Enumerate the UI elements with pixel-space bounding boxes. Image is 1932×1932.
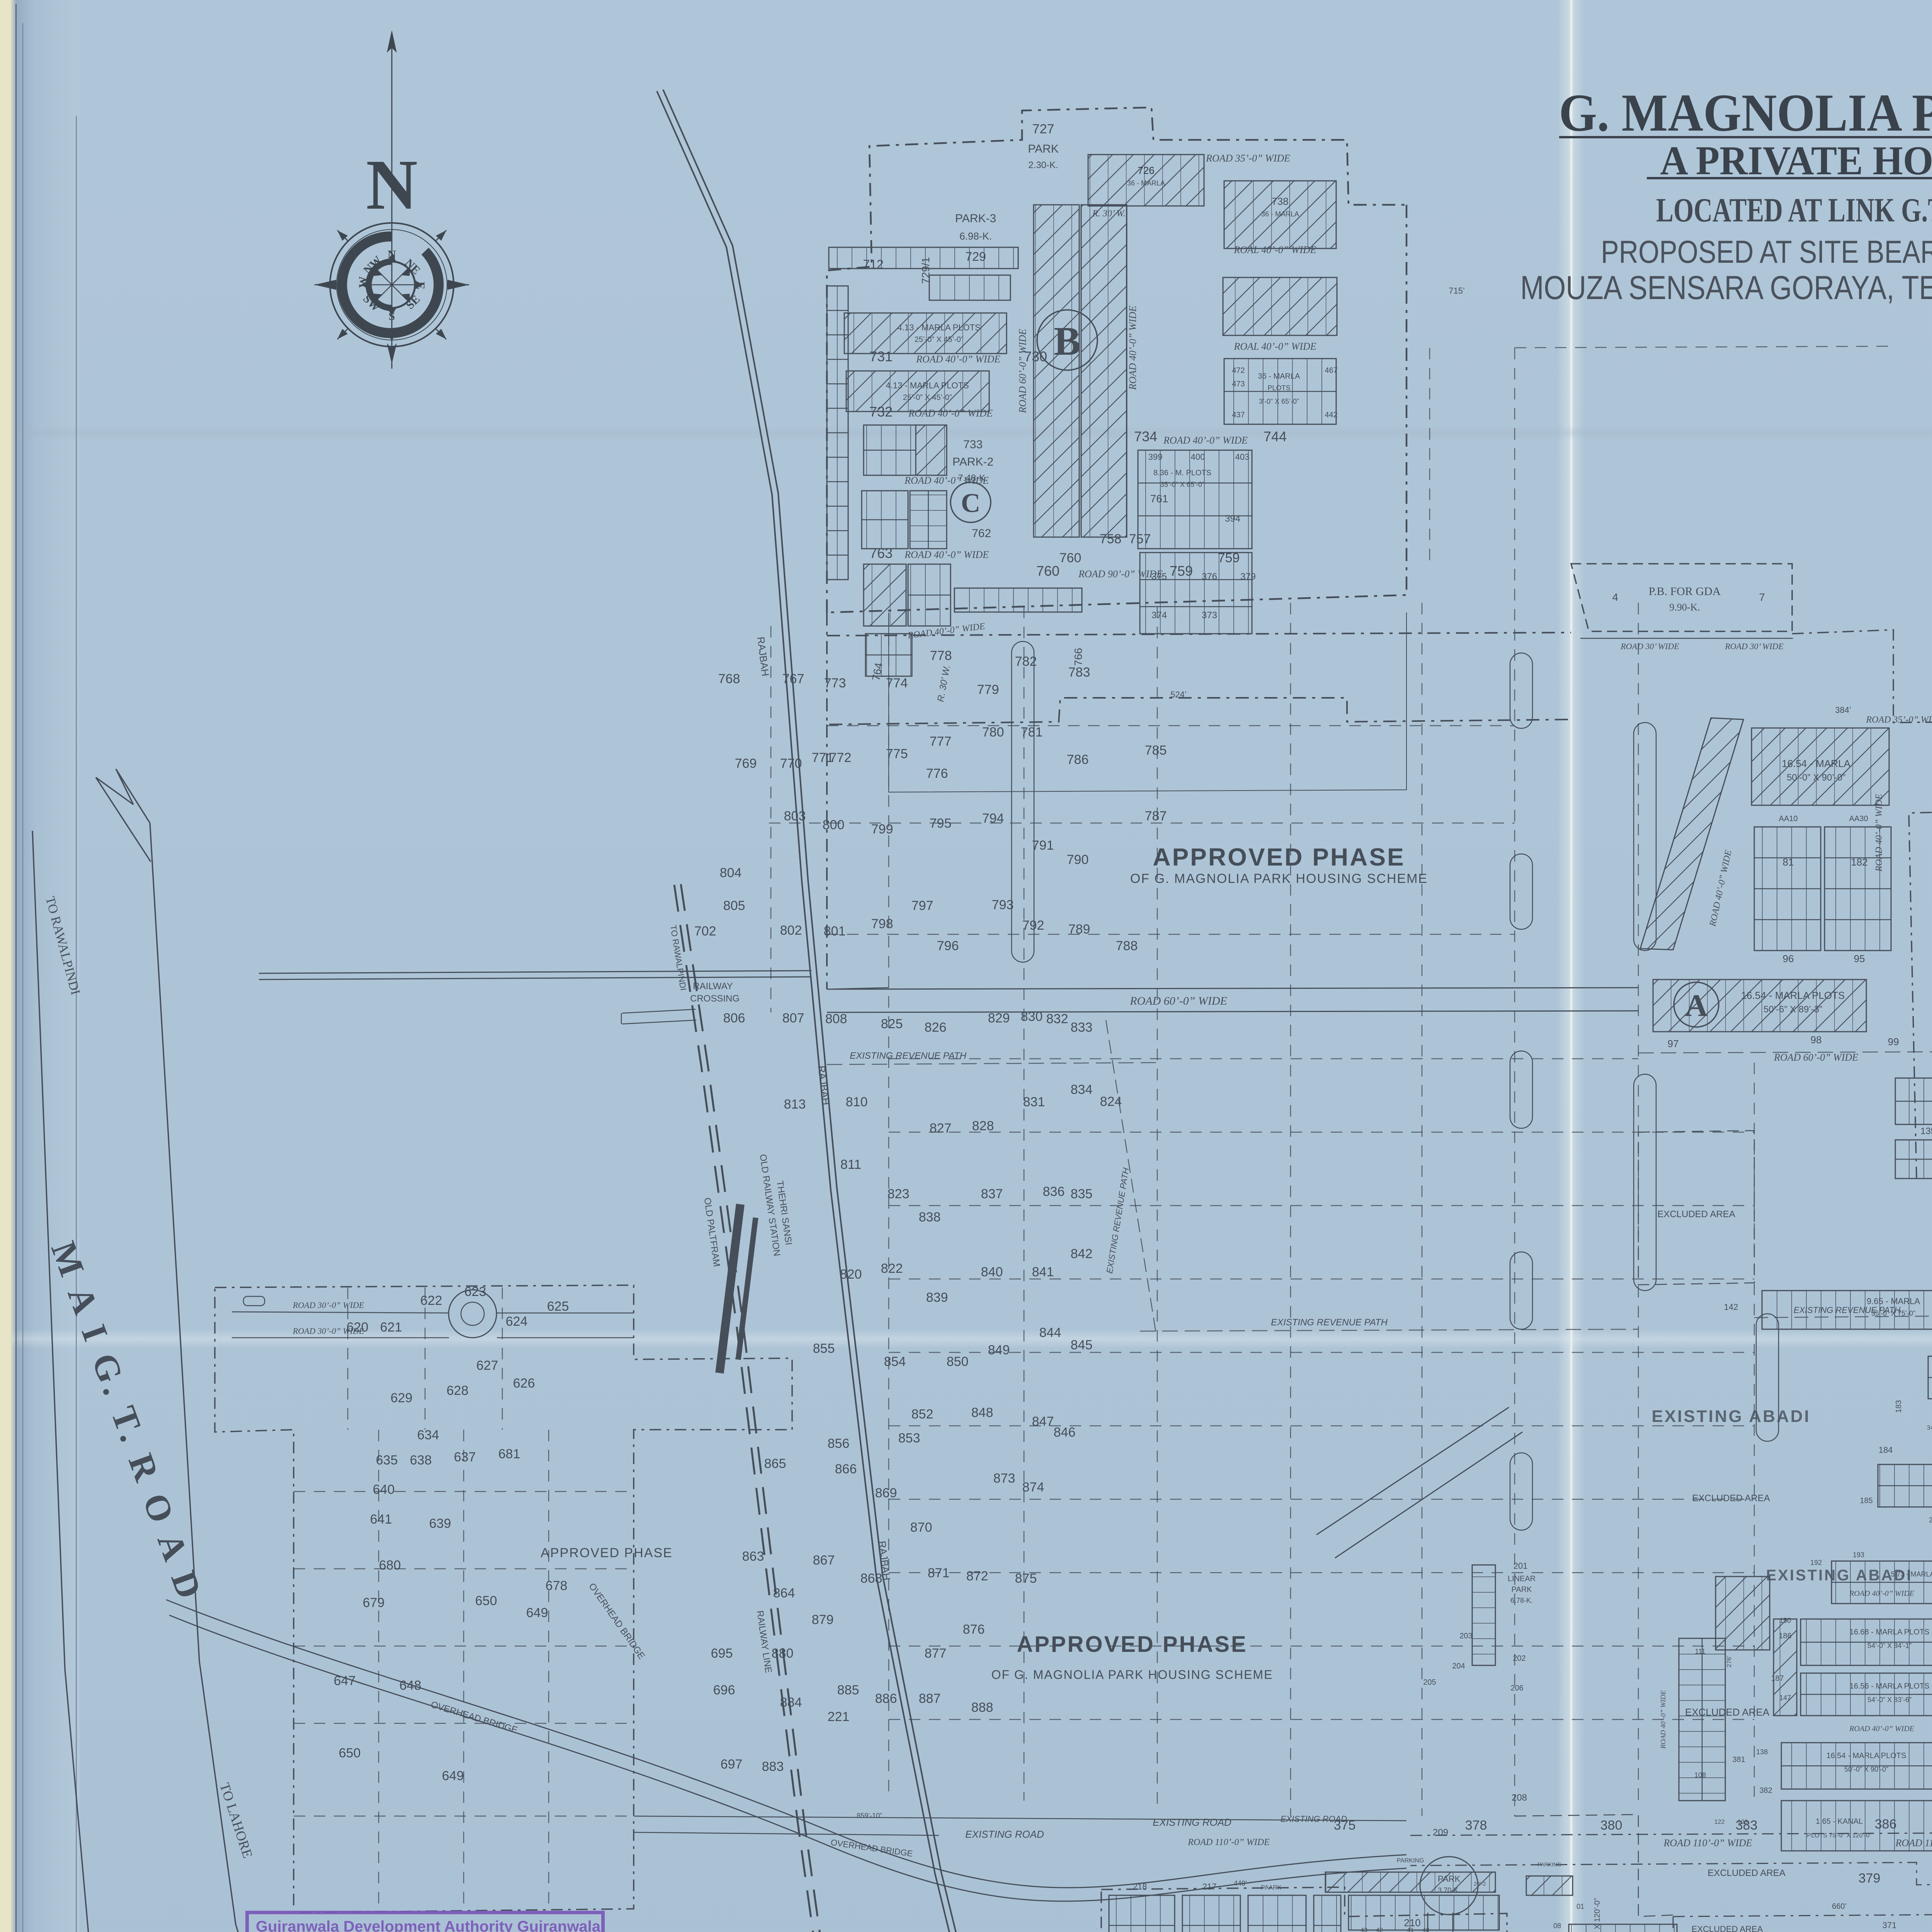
svg-text:800: 800 bbox=[823, 818, 845, 832]
svg-text:371: 371 bbox=[1883, 1920, 1897, 1930]
svg-text:801: 801 bbox=[824, 924, 846, 939]
svg-text:777: 777 bbox=[930, 734, 952, 749]
svg-text:822: 822 bbox=[881, 1261, 903, 1276]
svg-text:EXISTING ROAD: EXISTING ROAD bbox=[1153, 1816, 1231, 1828]
svg-text:54’-0” X 83’-6”: 54’-0” X 83’-6” bbox=[1867, 1696, 1912, 1704]
svg-text:ROAD 60’-0” WIDE: ROAD 60’-0” WIDE bbox=[1774, 1052, 1858, 1063]
svg-text:440’: 440’ bbox=[1234, 1879, 1247, 1887]
svg-text:EXISTING ABADI: EXISTING ABADI bbox=[1766, 1567, 1913, 1584]
svg-text:7: 7 bbox=[1759, 591, 1765, 603]
svg-text:EXISTING REVENUE PATH: EXISTING REVENUE PATH bbox=[1105, 1167, 1131, 1274]
svg-text:795: 795 bbox=[930, 816, 952, 831]
svg-text:864: 864 bbox=[773, 1586, 795, 1600]
svg-text:729: 729 bbox=[965, 250, 986, 264]
svg-text:138: 138 bbox=[1756, 1748, 1768, 1756]
svg-text:832: 832 bbox=[1046, 1012, 1068, 1026]
svg-text:36 - MARLA: 36 - MARLA bbox=[1127, 179, 1165, 187]
svg-text:727: 727 bbox=[1032, 122, 1054, 136]
svg-text:142: 142 bbox=[1724, 1302, 1738, 1312]
svg-text:778: 778 bbox=[930, 648, 952, 663]
svg-text:785: 785 bbox=[1145, 743, 1167, 758]
svg-text:16.54 - MARLA PLOTS: 16.54 - MARLA PLOTS bbox=[1741, 990, 1845, 1001]
svg-text:625: 625 bbox=[547, 1299, 569, 1314]
svg-text:852: 852 bbox=[912, 1407, 934, 1422]
svg-text:6.78-K.: 6.78-K. bbox=[1510, 1597, 1533, 1604]
svg-text:828: 828 bbox=[972, 1119, 994, 1133]
svg-text:888: 888 bbox=[971, 1700, 993, 1715]
svg-text:712: 712 bbox=[863, 257, 883, 271]
svg-text:846: 846 bbox=[1054, 1425, 1076, 1440]
svg-text:ROAD 110’-0” WIDE: ROAD 110’-0” WIDE bbox=[1187, 1837, 1270, 1847]
svg-text:839: 839 bbox=[926, 1290, 948, 1305]
svg-text:374: 374 bbox=[1151, 610, 1167, 621]
svg-text:781: 781 bbox=[1021, 725, 1043, 740]
svg-text:813: 813 bbox=[784, 1097, 806, 1112]
svg-text:627: 627 bbox=[476, 1358, 498, 1373]
svg-text:768: 768 bbox=[718, 672, 740, 686]
svg-text:341: 341 bbox=[1927, 1425, 1932, 1431]
svg-text:4.13 - MARLA PLOTS: 4.13 - MARLA PLOTS bbox=[886, 381, 969, 390]
svg-text:EXISTING REVENUE PATH: EXISTING REVENUE PATH bbox=[850, 1051, 966, 1061]
svg-text:783: 783 bbox=[1068, 665, 1090, 680]
svg-text:792: 792 bbox=[1022, 918, 1044, 933]
svg-text:01: 01 bbox=[1577, 1903, 1584, 1910]
svg-text:ROAD 40’-0” WIDE: ROAD 40’-0” WIDE bbox=[1849, 1725, 1914, 1733]
svg-text:EXCLUDED AREA: EXCLUDED AREA bbox=[1708, 1868, 1785, 1878]
svg-text:790: 790 bbox=[1067, 852, 1089, 867]
svg-text:193: 193 bbox=[1853, 1551, 1864, 1559]
svg-text:35’-0” X 65’-0”: 35’-0” X 65’-0” bbox=[1160, 481, 1204, 488]
svg-text:808: 808 bbox=[825, 1012, 847, 1026]
svg-text:885: 885 bbox=[837, 1683, 859, 1697]
svg-text:380: 380 bbox=[1600, 1818, 1622, 1833]
svg-text:874: 874 bbox=[1022, 1480, 1044, 1495]
svg-text:650: 650 bbox=[475, 1594, 497, 1608]
svg-text:639: 639 bbox=[429, 1516, 451, 1531]
svg-text:621: 621 bbox=[380, 1320, 402, 1335]
svg-text:842: 842 bbox=[1071, 1247, 1093, 1261]
svg-text:628: 628 bbox=[447, 1383, 469, 1398]
svg-text:734: 734 bbox=[1134, 429, 1157, 444]
svg-text:209: 209 bbox=[1433, 1827, 1448, 1838]
svg-text:PARK: PARK bbox=[1028, 143, 1058, 155]
svg-text:185: 185 bbox=[1860, 1497, 1872, 1505]
svg-text:876: 876 bbox=[963, 1622, 985, 1637]
svg-text:805: 805 bbox=[723, 898, 745, 913]
svg-text:845: 845 bbox=[1071, 1338, 1093, 1352]
svg-text:622: 622 bbox=[420, 1293, 442, 1308]
svg-text:ROAD 90’-0” WIDE: ROAD 90’-0” WIDE bbox=[1078, 568, 1163, 580]
svg-text:TO RAWALPINDI: TO RAWALPINDI bbox=[668, 924, 689, 991]
svg-text:CROSSING: CROSSING bbox=[690, 993, 740, 1004]
svg-text:841: 841 bbox=[1032, 1265, 1054, 1279]
svg-text:802: 802 bbox=[780, 923, 802, 938]
svg-text:833: 833 bbox=[1071, 1020, 1093, 1035]
svg-text:774: 774 bbox=[886, 676, 908, 690]
svg-text:729/1: 729/1 bbox=[920, 257, 932, 284]
svg-text:TO RAWALPINDI: TO RAWALPINDI bbox=[43, 895, 83, 997]
svg-text:856: 856 bbox=[828, 1436, 850, 1451]
svg-text:276’: 276’ bbox=[1726, 1656, 1733, 1667]
svg-text:4: 4 bbox=[1612, 591, 1618, 603]
svg-text:886: 886 bbox=[875, 1691, 897, 1706]
svg-text:394: 394 bbox=[1225, 514, 1240, 524]
svg-text:379: 379 bbox=[1240, 571, 1256, 582]
svg-text:PARK: PARK bbox=[1512, 1585, 1532, 1594]
svg-text:99: 99 bbox=[1888, 1036, 1899, 1048]
svg-text:192: 192 bbox=[1810, 1559, 1822, 1566]
svg-text:788: 788 bbox=[1116, 939, 1138, 953]
svg-text:877: 877 bbox=[925, 1646, 947, 1661]
svg-text:823: 823 bbox=[888, 1187, 910, 1201]
svg-text:797: 797 bbox=[912, 898, 934, 913]
svg-text:ROAD 35’-0” WIDE: ROAD 35’-0” WIDE bbox=[1866, 715, 1932, 725]
svg-text:649: 649 bbox=[442, 1769, 464, 1783]
svg-text:APPROVED PHASE: APPROVED PHASE bbox=[1153, 843, 1405, 871]
svg-text:50’-0” X 90’-0”: 50’-0” X 90’-0” bbox=[1787, 772, 1845, 783]
svg-text:16.56 - MARLA PLOTS: 16.56 - MARLA PLOTS bbox=[1850, 1682, 1930, 1690]
svg-text:EXISTING ROAD: EXISTING ROAD bbox=[965, 1828, 1044, 1840]
svg-text:122: 122 bbox=[1714, 1819, 1725, 1825]
svg-text:384’: 384’ bbox=[1835, 705, 1851, 715]
svg-text:182: 182 bbox=[1851, 856, 1867, 868]
svg-text:779: 779 bbox=[977, 682, 999, 697]
svg-text:AA30: AA30 bbox=[1849, 815, 1868, 823]
svg-text:786: 786 bbox=[1067, 752, 1089, 767]
svg-text:810: 810 bbox=[846, 1095, 868, 1109]
svg-text:381: 381 bbox=[1732, 1755, 1745, 1764]
svg-text:RAILWAY LINE: RAILWAY LINE bbox=[755, 1610, 774, 1673]
svg-text:96: 96 bbox=[1783, 953, 1794, 964]
svg-text:804: 804 bbox=[720, 866, 742, 880]
svg-text:796: 796 bbox=[937, 939, 959, 953]
svg-text:PARK-3: PARK-3 bbox=[955, 212, 996, 225]
svg-text:206: 206 bbox=[1510, 1684, 1523, 1692]
svg-text:ROAD 30’ WIDE: ROAD 30’ WIDE bbox=[1620, 641, 1679, 651]
svg-text:769: 769 bbox=[735, 756, 757, 771]
svg-text:202: 202 bbox=[1513, 1654, 1526, 1663]
svg-text:4.13 - MARLA PLOTS: 4.13 - MARLA PLOTS bbox=[897, 323, 980, 332]
svg-text:870: 870 bbox=[910, 1520, 932, 1535]
svg-text:702: 702 bbox=[694, 924, 716, 939]
svg-text:ROAD 40’-0” WIDE: ROAD 40’-0” WIDE bbox=[1708, 849, 1734, 928]
svg-text:641: 641 bbox=[370, 1512, 392, 1527]
svg-text:108: 108 bbox=[1694, 1771, 1706, 1779]
svg-text:806: 806 bbox=[723, 1011, 745, 1026]
svg-text:437: 437 bbox=[1232, 411, 1245, 419]
svg-text:ROAD 30’-0” WIDE: ROAD 30’-0” WIDE bbox=[293, 1300, 364, 1310]
svg-text:183: 183 bbox=[1895, 1400, 1903, 1413]
svg-text:ROAD 60’-0” WIDE: ROAD 60’-0” WIDE bbox=[1129, 995, 1227, 1007]
svg-text:36 - MARLA: 36 - MARLA bbox=[1261, 210, 1299, 218]
svg-text:883: 883 bbox=[762, 1759, 784, 1774]
svg-text:ROAD 40’-0” WIDE: ROAD 40’-0” WIDE bbox=[1163, 435, 1248, 446]
svg-text:629: 629 bbox=[391, 1391, 413, 1405]
svg-text:859’-10”: 859’-10” bbox=[857, 1812, 882, 1820]
svg-text:681: 681 bbox=[498, 1447, 520, 1461]
svg-text:1.65 - KANAL: 1.65 - KANAL bbox=[1816, 1817, 1863, 1826]
svg-text:ROAD 30’-0” WIDE: ROAD 30’-0” WIDE bbox=[293, 1326, 364, 1336]
svg-text:767: 767 bbox=[782, 672, 804, 686]
svg-text:LINEAR: LINEAR bbox=[1508, 1575, 1536, 1583]
svg-text:16.54 - MARLA: 16.54 - MARLA bbox=[1782, 758, 1850, 769]
svg-text:759: 759 bbox=[1170, 563, 1193, 579]
svg-text:726: 726 bbox=[1138, 165, 1154, 176]
svg-text:ROAD 35’-0” WIDE: ROAD 35’-0” WIDE bbox=[1206, 153, 1290, 164]
svg-text:847: 847 bbox=[1032, 1414, 1054, 1429]
svg-text:373: 373 bbox=[1202, 610, 1217, 621]
svg-text:873: 873 bbox=[993, 1471, 1015, 1486]
svg-text:887: 887 bbox=[919, 1691, 941, 1706]
svg-text:764: 764 bbox=[870, 662, 885, 682]
svg-text:OF G. MAGNOLIA PARK HOUSING SC: OF G. MAGNOLIA PARK HOUSING SCHEME bbox=[1130, 871, 1428, 886]
svg-text:221: 221 bbox=[828, 1709, 850, 1724]
svg-text:ROAD 110’-0” WIDE: ROAD 110’-0” WIDE bbox=[1663, 1837, 1752, 1849]
svg-text:APPROVED PHASE: APPROVED PHASE bbox=[541, 1546, 673, 1560]
svg-text:ROAD 40’-0” WIDE: ROAD 40’-0” WIDE bbox=[1874, 794, 1884, 872]
svg-text:837: 837 bbox=[981, 1187, 1003, 1201]
svg-text:680: 680 bbox=[379, 1558, 401, 1573]
svg-text:844: 844 bbox=[1039, 1325, 1061, 1340]
svg-text:50’-6” X 89’-3”: 50’-6” X 89’-3” bbox=[1764, 1004, 1822, 1015]
svg-text:97: 97 bbox=[1668, 1038, 1679, 1049]
svg-text:AA10: AA10 bbox=[1779, 815, 1798, 823]
svg-text:378: 378 bbox=[1465, 1818, 1487, 1833]
svg-text:791: 791 bbox=[1032, 838, 1054, 853]
svg-text:9.65 - MARLA: 9.65 - MARLA bbox=[1867, 1296, 1920, 1306]
svg-text:16.54 - MARLA PLOTS: 16.54 - MARLA PLOTS bbox=[1827, 1752, 1906, 1760]
svg-text:660’: 660’ bbox=[1832, 1902, 1847, 1911]
svg-text:201: 201 bbox=[1514, 1561, 1528, 1571]
svg-text:2.30-K.: 2.30-K. bbox=[1028, 160, 1058, 170]
svg-text:81: 81 bbox=[1783, 856, 1794, 868]
svg-text:871: 871 bbox=[928, 1566, 950, 1580]
svg-text:840: 840 bbox=[981, 1265, 1003, 1279]
svg-text:787: 787 bbox=[1145, 809, 1167, 823]
svg-text:738: 738 bbox=[1272, 196, 1288, 207]
svg-text:203: 203 bbox=[1459, 1632, 1472, 1640]
svg-text:865: 865 bbox=[764, 1456, 786, 1471]
svg-text:EXISTING ABADI: EXISTING ABADI bbox=[1651, 1407, 1810, 1426]
svg-text:775: 775 bbox=[886, 747, 908, 761]
svg-text:ROAD 40’-0” WIDE: ROAD 40’-0” WIDE bbox=[1127, 306, 1138, 390]
svg-text:761: 761 bbox=[1150, 493, 1168, 505]
svg-text:836: 836 bbox=[1043, 1184, 1065, 1199]
svg-text:649: 649 bbox=[526, 1605, 548, 1620]
svg-text:650: 650 bbox=[339, 1746, 361, 1760]
svg-text:RAJBAH: RAJBAH bbox=[816, 1065, 832, 1105]
svg-text:762: 762 bbox=[972, 527, 991, 540]
svg-text:838: 838 bbox=[919, 1210, 941, 1225]
svg-text:EXCLUDED AREA: EXCLUDED AREA bbox=[1692, 1493, 1770, 1503]
svg-text:782: 782 bbox=[1015, 654, 1037, 669]
svg-text:760: 760 bbox=[1036, 563, 1060, 579]
svg-text:ROAD 60’-0” WIDE: ROAD 60’-0” WIDE bbox=[1017, 329, 1028, 413]
svg-text:ROAL 40’-0” WIDE: ROAL 40’-0” WIDE bbox=[1233, 341, 1316, 352]
svg-text:780: 780 bbox=[982, 725, 1004, 740]
svg-text:638: 638 bbox=[410, 1453, 432, 1468]
svg-text:6.98-K.: 6.98-K. bbox=[959, 230, 992, 242]
svg-text:EXCLUDED AREA: EXCLUDED AREA bbox=[1692, 1924, 1763, 1932]
svg-text:08: 08 bbox=[1553, 1922, 1561, 1930]
svg-text:733: 733 bbox=[963, 438, 983, 451]
svg-text:853: 853 bbox=[898, 1431, 920, 1446]
svg-text:869: 869 bbox=[875, 1486, 897, 1500]
svg-text:772: 772 bbox=[830, 750, 852, 765]
svg-text:884: 884 bbox=[780, 1695, 802, 1710]
svg-text:382: 382 bbox=[1759, 1786, 1772, 1795]
svg-text:798: 798 bbox=[871, 917, 893, 931]
svg-text:P.B. FOR GDA: P.B. FOR GDA bbox=[1649, 585, 1721, 598]
svg-text:826: 826 bbox=[925, 1020, 947, 1035]
svg-text:111: 111 bbox=[1695, 1648, 1705, 1655]
svg-text:789: 789 bbox=[1068, 922, 1090, 937]
svg-text:696: 696 bbox=[713, 1683, 735, 1697]
svg-text:EXISTING REVENUE PATH: EXISTING REVENUE PATH bbox=[1271, 1317, 1388, 1328]
svg-text:831: 831 bbox=[1023, 1095, 1045, 1109]
svg-text:835: 835 bbox=[1071, 1187, 1093, 1201]
svg-text:830: 830 bbox=[1021, 1009, 1043, 1024]
svg-text:184: 184 bbox=[1879, 1445, 1893, 1455]
svg-text:208: 208 bbox=[1512, 1793, 1527, 1803]
svg-text:R. 30’ W.: R. 30’ W. bbox=[935, 664, 952, 703]
svg-text:256’-5”: 256’-5” bbox=[1929, 1516, 1932, 1524]
svg-text:811: 811 bbox=[840, 1157, 861, 1172]
svg-text:850: 850 bbox=[947, 1354, 969, 1369]
svg-text:793: 793 bbox=[992, 898, 1014, 912]
svg-text:770: 770 bbox=[780, 756, 802, 771]
svg-text:829: 829 bbox=[988, 1011, 1010, 1026]
svg-text:867: 867 bbox=[813, 1553, 835, 1568]
svg-text:PARK-2: PARK-2 bbox=[952, 456, 993, 468]
svg-text:204: 204 bbox=[1452, 1662, 1465, 1670]
svg-text:399: 399 bbox=[1148, 452, 1163, 462]
svg-text:50’-0” X 90’-0”: 50’-0” X 90’-0” bbox=[1844, 1765, 1888, 1773]
svg-text:205: 205 bbox=[1423, 1678, 1436, 1687]
svg-text:ROAD 110’-0” WIDE: ROAD 110’-0” WIDE bbox=[1895, 1837, 1932, 1849]
svg-text:624: 624 bbox=[506, 1314, 528, 1329]
svg-text:473: 473 bbox=[1232, 380, 1245, 388]
svg-text:OVERHEAD BRIDGE: OVERHEAD BRIDGE bbox=[830, 1837, 913, 1859]
svg-text:9.90-K.: 9.90-K. bbox=[1669, 602, 1700, 613]
svg-text:PLOTS: PLOTS bbox=[1267, 384, 1290, 392]
svg-text:40: 40 bbox=[1422, 1927, 1429, 1932]
svg-text:803: 803 bbox=[784, 809, 806, 823]
svg-text:OF G. MAGNOLIA PARK HOUSING SC: OF G. MAGNOLIA PARK HOUSING SCHEME bbox=[992, 1668, 1273, 1682]
svg-text:376: 376 bbox=[1202, 571, 1217, 582]
svg-text:ROAD 40’-0” WIDE: ROAD 40’-0” WIDE bbox=[904, 549, 989, 560]
svg-text:799: 799 bbox=[871, 822, 893, 837]
svg-text:20’-2: 20’-2 bbox=[1474, 1881, 1486, 1887]
svg-text:695: 695 bbox=[711, 1646, 733, 1661]
svg-text:766: 766 bbox=[1072, 648, 1084, 666]
svg-text:36 - MARLA: 36 - MARLA bbox=[1258, 372, 1301, 381]
svg-text:379: 379 bbox=[1859, 1871, 1881, 1886]
svg-text:TO LAHORE: TO LAHORE bbox=[217, 1781, 256, 1860]
svg-text:54’-0” X 84’-1”: 54’-0” X 84’-1” bbox=[1867, 1642, 1912, 1650]
svg-text:827: 827 bbox=[930, 1121, 952, 1136]
svg-text:824: 824 bbox=[1100, 1094, 1122, 1109]
svg-text:42: 42 bbox=[1376, 1927, 1383, 1932]
svg-text:400: 400 bbox=[1191, 452, 1205, 462]
svg-text:95: 95 bbox=[1854, 953, 1865, 964]
svg-text:ROAD 40’-0” WIDE: ROAD 40’-0” WIDE bbox=[1849, 1589, 1914, 1598]
svg-text:880: 880 bbox=[772, 1646, 794, 1661]
svg-text:RAJBAH: RAJBAH bbox=[755, 636, 771, 677]
svg-text:866: 866 bbox=[835, 1462, 857, 1476]
svg-text:EXISTING ROAD: EXISTING ROAD bbox=[1281, 1814, 1347, 1824]
svg-text:834: 834 bbox=[1071, 1082, 1093, 1097]
svg-text:25’-0” X 45’-0”: 25’-0” X 45’-0” bbox=[915, 335, 964, 344]
svg-text:472: 472 bbox=[1232, 366, 1245, 375]
svg-text:PARKING: PARKING bbox=[1397, 1857, 1424, 1864]
svg-text:849: 849 bbox=[988, 1343, 1010, 1357]
svg-text:ROAD 40’-0” WIDE: ROAD 40’-0” WIDE bbox=[916, 354, 1000, 365]
svg-text:848: 848 bbox=[971, 1405, 993, 1420]
svg-text:854: 854 bbox=[884, 1354, 906, 1369]
svg-text:855: 855 bbox=[813, 1341, 835, 1356]
svg-text:626: 626 bbox=[513, 1376, 535, 1391]
svg-text:715’: 715’ bbox=[1449, 286, 1465, 296]
svg-text:679: 679 bbox=[363, 1595, 385, 1610]
svg-text:807: 807 bbox=[782, 1011, 804, 1026]
svg-text:ROAD 30’ WIDE: ROAD 30’ WIDE bbox=[1725, 641, 1784, 651]
svg-text:C: C bbox=[961, 488, 981, 518]
svg-text:41: 41 bbox=[1407, 1927, 1414, 1932]
svg-text:APPROVED PHASE: APPROVED PHASE bbox=[1017, 1632, 1247, 1657]
svg-text:879: 879 bbox=[812, 1612, 834, 1627]
svg-text:PARKING: PARKING bbox=[1537, 1861, 1561, 1867]
svg-text:RAILWAY: RAILWAY bbox=[693, 981, 733, 992]
svg-text:3’-0” X 65’-0”: 3’-0” X 65’-0” bbox=[1259, 398, 1299, 405]
svg-text:868: 868 bbox=[861, 1571, 883, 1586]
svg-text:EXCLUDED AREA: EXCLUDED AREA bbox=[1657, 1209, 1735, 1219]
svg-text:825: 825 bbox=[881, 1017, 903, 1031]
svg-text:43: 43 bbox=[1361, 1927, 1367, 1932]
svg-text:PAARK: PAARK bbox=[1261, 1884, 1281, 1891]
svg-text:A: A bbox=[1685, 988, 1708, 1023]
svg-text:637: 637 bbox=[454, 1450, 476, 1464]
svg-text:8.36 - M. PLOTS: 8.36 - M. PLOTS bbox=[1153, 469, 1211, 477]
svg-text:442: 442 bbox=[1325, 411, 1337, 419]
svg-text:697: 697 bbox=[721, 1757, 743, 1772]
svg-text:217: 217 bbox=[1202, 1882, 1217, 1891]
svg-text:648: 648 bbox=[400, 1678, 422, 1693]
svg-text:872: 872 bbox=[966, 1569, 988, 1583]
svg-text:98: 98 bbox=[1811, 1034, 1822, 1046]
svg-text:35’-0” X 75’-0”: 35’-0” X 75’-0” bbox=[1871, 1310, 1915, 1317]
svg-text:863: 863 bbox=[742, 1549, 764, 1564]
svg-text:ROAD 40’-0” WIDE: ROAD 40’-0” WIDE bbox=[1659, 1690, 1667, 1749]
svg-text:16.68 - MARLA PLOTS: 16.68 - MARLA PLOTS bbox=[1850, 1628, 1930, 1636]
svg-text:403: 403 bbox=[1235, 452, 1250, 462]
svg-text:25’-0” X 45’-0”: 25’-0” X 45’-0” bbox=[903, 393, 952, 402]
svg-text:B: B bbox=[1054, 318, 1081, 364]
svg-text:760: 760 bbox=[1060, 551, 1082, 565]
svg-text:OVERHEAD BRIDGE: OVERHEAD BRIDGE bbox=[587, 1581, 647, 1661]
svg-text:776: 776 bbox=[926, 766, 948, 781]
svg-text:820: 820 bbox=[840, 1267, 862, 1282]
svg-text:123: 123 bbox=[1738, 1819, 1748, 1825]
svg-text:OLD PALTFRAM: OLD PALTFRAM bbox=[702, 1197, 722, 1267]
svg-text:794: 794 bbox=[982, 811, 1004, 826]
svg-text:467: 467 bbox=[1325, 366, 1337, 375]
svg-text:218: 218 bbox=[1133, 1882, 1147, 1891]
svg-text:135: 135 bbox=[1920, 1126, 1932, 1136]
svg-text:640: 640 bbox=[373, 1482, 395, 1497]
svg-text:634: 634 bbox=[417, 1428, 439, 1442]
svg-text:875: 875 bbox=[1015, 1571, 1037, 1586]
